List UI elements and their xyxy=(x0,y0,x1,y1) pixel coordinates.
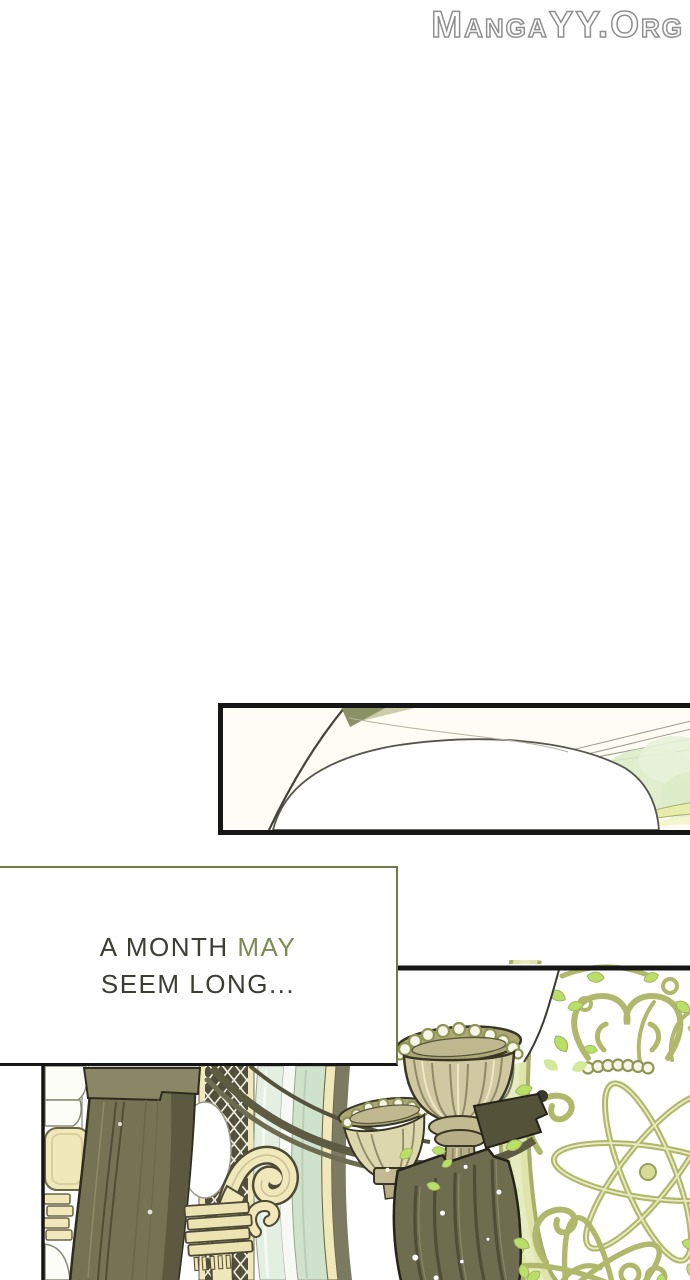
manga-page: MangaYY.Org xyxy=(0,0,690,1280)
ceiling-artwork xyxy=(223,708,690,830)
filigree-interlace xyxy=(562,967,690,1062)
site-watermark: MangaYY.Org xyxy=(431,1,684,49)
curved-beam xyxy=(70,1068,200,1280)
speech-line1-prefix: A MONTH xyxy=(100,932,238,962)
site-watermark-text: MangaYY.Org xyxy=(431,4,684,46)
speech-line1-highlight: MAY xyxy=(237,932,296,962)
speech-line1: A MONTH MAY xyxy=(100,932,297,962)
carved-hull xyxy=(384,1147,525,1280)
speech-line2: SEEM LONG... xyxy=(101,969,295,999)
bead-row xyxy=(583,1060,654,1074)
panel-ceiling xyxy=(218,703,690,835)
speech-box: A MONTH MAY SEEM LONG... xyxy=(0,866,398,1066)
ornament-ring xyxy=(621,1265,639,1280)
speech-text: A MONTH MAY SEEM LONG... xyxy=(100,929,297,1003)
